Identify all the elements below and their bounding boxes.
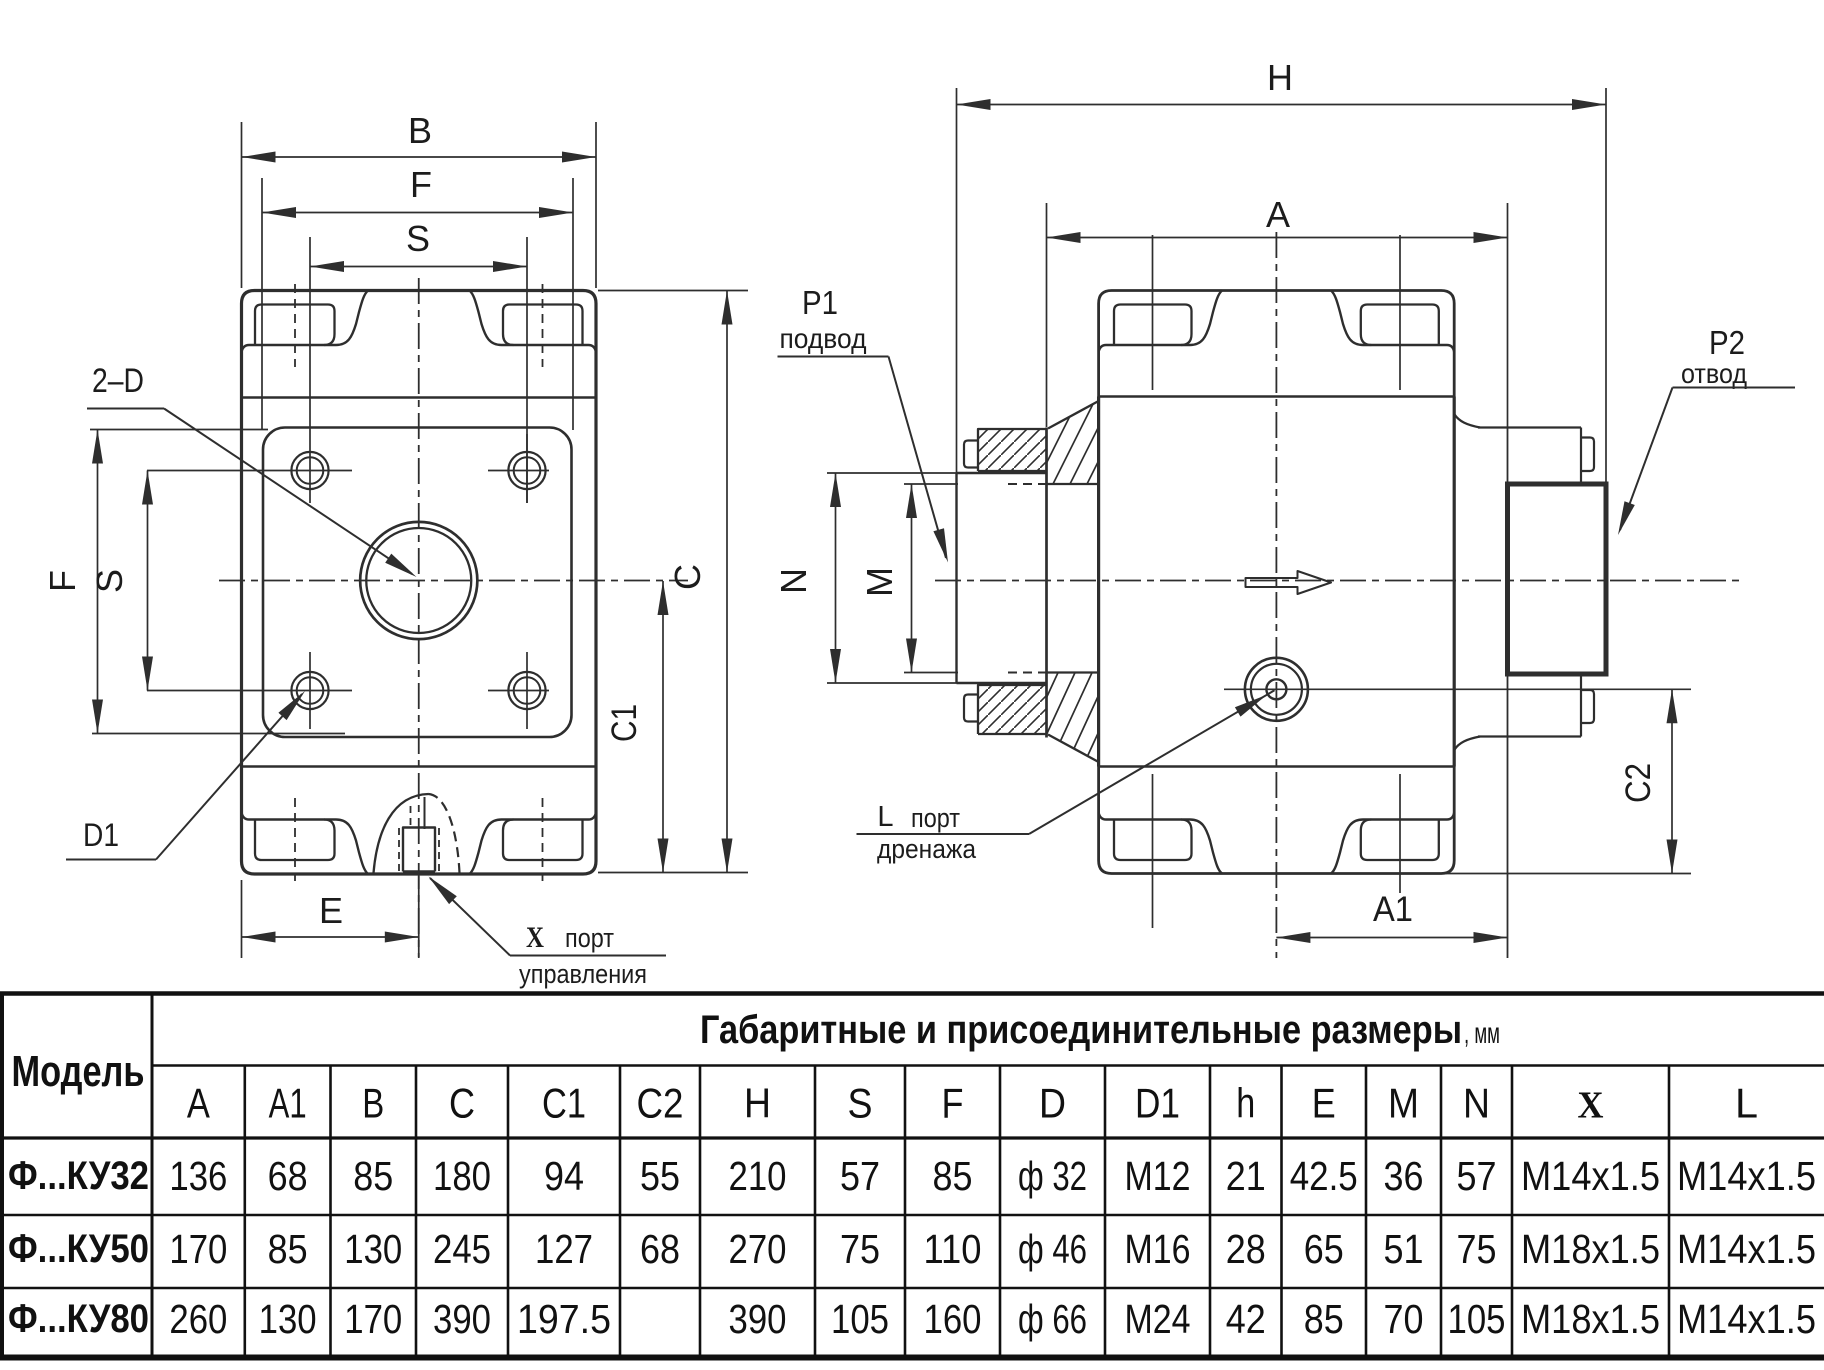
svg-text:Модель: Модель: [12, 1047, 145, 1096]
svg-text:C2: C2: [637, 1080, 684, 1127]
svg-text:E: E: [319, 890, 343, 931]
svg-text:57: 57: [840, 1153, 880, 1199]
svg-text:75: 75: [1457, 1226, 1497, 1272]
svg-text:N: N: [1463, 1080, 1490, 1127]
svg-text:M: M: [1388, 1080, 1419, 1127]
svg-text:Ф...КУ32: Ф...КУ32: [8, 1154, 149, 1198]
svg-text:ф 66: ф 66: [1018, 1296, 1087, 1342]
svg-text:M12: M12: [1125, 1153, 1191, 1199]
svg-text:A1: A1: [1373, 890, 1413, 929]
svg-text:390: 390: [729, 1296, 787, 1342]
svg-text:дренажа: дренажа: [877, 834, 977, 864]
svg-text:85: 85: [1304, 1296, 1344, 1342]
svg-text:, мм: , мм: [1464, 1017, 1500, 1050]
svg-text:M18x1.5: M18x1.5: [1521, 1226, 1660, 1272]
svg-text:28: 28: [1226, 1226, 1266, 1272]
svg-text:51: 51: [1384, 1226, 1424, 1272]
svg-text:H: H: [1267, 57, 1293, 98]
svg-text:170: 170: [169, 1226, 227, 1272]
svg-text:270: 270: [729, 1226, 787, 1272]
svg-text:57: 57: [1457, 1153, 1497, 1199]
svg-text:управления: управления: [519, 959, 647, 989]
svg-text:C1: C1: [542, 1080, 586, 1127]
svg-text:P2: P2: [1709, 324, 1745, 361]
svg-text:170: 170: [344, 1296, 402, 1342]
svg-text:Габаритные и присоединительные: Габаритные и присоединительные размеры: [700, 1008, 1462, 1052]
svg-text:197.5: 197.5: [517, 1296, 611, 1342]
svg-text:160: 160: [924, 1296, 982, 1342]
svg-text:A: A: [187, 1080, 210, 1127]
svg-text:210: 210: [729, 1153, 787, 1199]
svg-text:C1: C1: [605, 704, 644, 742]
svg-text:P1: P1: [802, 284, 838, 321]
svg-text:подвод: подвод: [780, 323, 867, 354]
svg-text:70: 70: [1384, 1296, 1424, 1342]
svg-text:F: F: [942, 1080, 964, 1127]
svg-text:X: X: [1578, 1085, 1604, 1127]
svg-text:ф 46: ф 46: [1018, 1226, 1087, 1272]
svg-text:M18x1.5: M18x1.5: [1521, 1296, 1660, 1342]
svg-text:H: H: [744, 1080, 771, 1127]
svg-text:55: 55: [640, 1153, 680, 1199]
svg-text:105: 105: [831, 1296, 889, 1342]
svg-text:42.5: 42.5: [1290, 1153, 1358, 1199]
svg-text:110: 110: [924, 1226, 982, 1272]
svg-text:260: 260: [169, 1296, 227, 1342]
svg-text:M14x1.5: M14x1.5: [1677, 1296, 1816, 1342]
svg-text:ф 32: ф 32: [1018, 1153, 1087, 1199]
svg-text:36: 36: [1384, 1153, 1424, 1199]
svg-text:C: C: [667, 564, 708, 590]
svg-text:L: L: [877, 801, 893, 833]
svg-text:S: S: [89, 569, 130, 593]
svg-text:h: h: [1236, 1080, 1255, 1127]
svg-text:127: 127: [535, 1226, 593, 1272]
svg-text:M: M: [859, 567, 900, 597]
svg-text:85: 85: [268, 1226, 308, 1272]
svg-text:A1: A1: [269, 1080, 307, 1127]
svg-text:порт: порт: [911, 803, 960, 833]
svg-text:M14x1.5: M14x1.5: [1677, 1226, 1816, 1272]
svg-text:75: 75: [840, 1226, 880, 1272]
svg-text:85: 85: [933, 1153, 973, 1199]
svg-text:180: 180: [433, 1153, 491, 1199]
svg-text:130: 130: [259, 1296, 317, 1342]
svg-text:Ф...КУ80: Ф...КУ80: [8, 1297, 149, 1341]
svg-text:F: F: [42, 570, 83, 592]
svg-text:M16: M16: [1125, 1226, 1191, 1272]
svg-text:21: 21: [1226, 1153, 1266, 1199]
svg-text:2–D: 2–D: [92, 362, 144, 400]
svg-text:F: F: [410, 164, 432, 205]
svg-text:E: E: [1312, 1080, 1336, 1127]
svg-text:42: 42: [1226, 1296, 1266, 1342]
svg-text:B: B: [408, 110, 432, 151]
svg-text:N: N: [773, 568, 814, 594]
svg-text:S: S: [406, 218, 430, 259]
svg-text:S: S: [848, 1080, 873, 1127]
svg-text:D1: D1: [83, 817, 119, 853]
svg-text:D: D: [1039, 1080, 1066, 1127]
svg-text:Ф...КУ50: Ф...КУ50: [8, 1227, 149, 1271]
svg-text:68: 68: [268, 1153, 308, 1199]
svg-text:X: X: [526, 921, 544, 954]
svg-text:B: B: [362, 1080, 384, 1127]
svg-text:C: C: [449, 1080, 475, 1127]
svg-text:105: 105: [1448, 1296, 1506, 1342]
svg-text:порт: порт: [565, 923, 614, 953]
svg-text:68: 68: [640, 1226, 680, 1272]
svg-text:136: 136: [169, 1153, 227, 1199]
svg-text:390: 390: [433, 1296, 491, 1342]
svg-text:85: 85: [353, 1153, 393, 1199]
svg-text:C2: C2: [1619, 763, 1658, 803]
svg-text:L: L: [1735, 1080, 1758, 1127]
svg-text:94: 94: [544, 1153, 584, 1199]
svg-text:отвод: отвод: [1681, 358, 1747, 389]
svg-text:A: A: [1266, 194, 1290, 235]
svg-text:245: 245: [433, 1226, 491, 1272]
svg-text:65: 65: [1304, 1226, 1344, 1272]
svg-text:130: 130: [344, 1226, 402, 1272]
svg-text:M14x1.5: M14x1.5: [1521, 1153, 1660, 1199]
svg-text:D1: D1: [1135, 1080, 1180, 1127]
svg-text:M24: M24: [1125, 1296, 1191, 1342]
svg-text:M14x1.5: M14x1.5: [1677, 1153, 1816, 1199]
